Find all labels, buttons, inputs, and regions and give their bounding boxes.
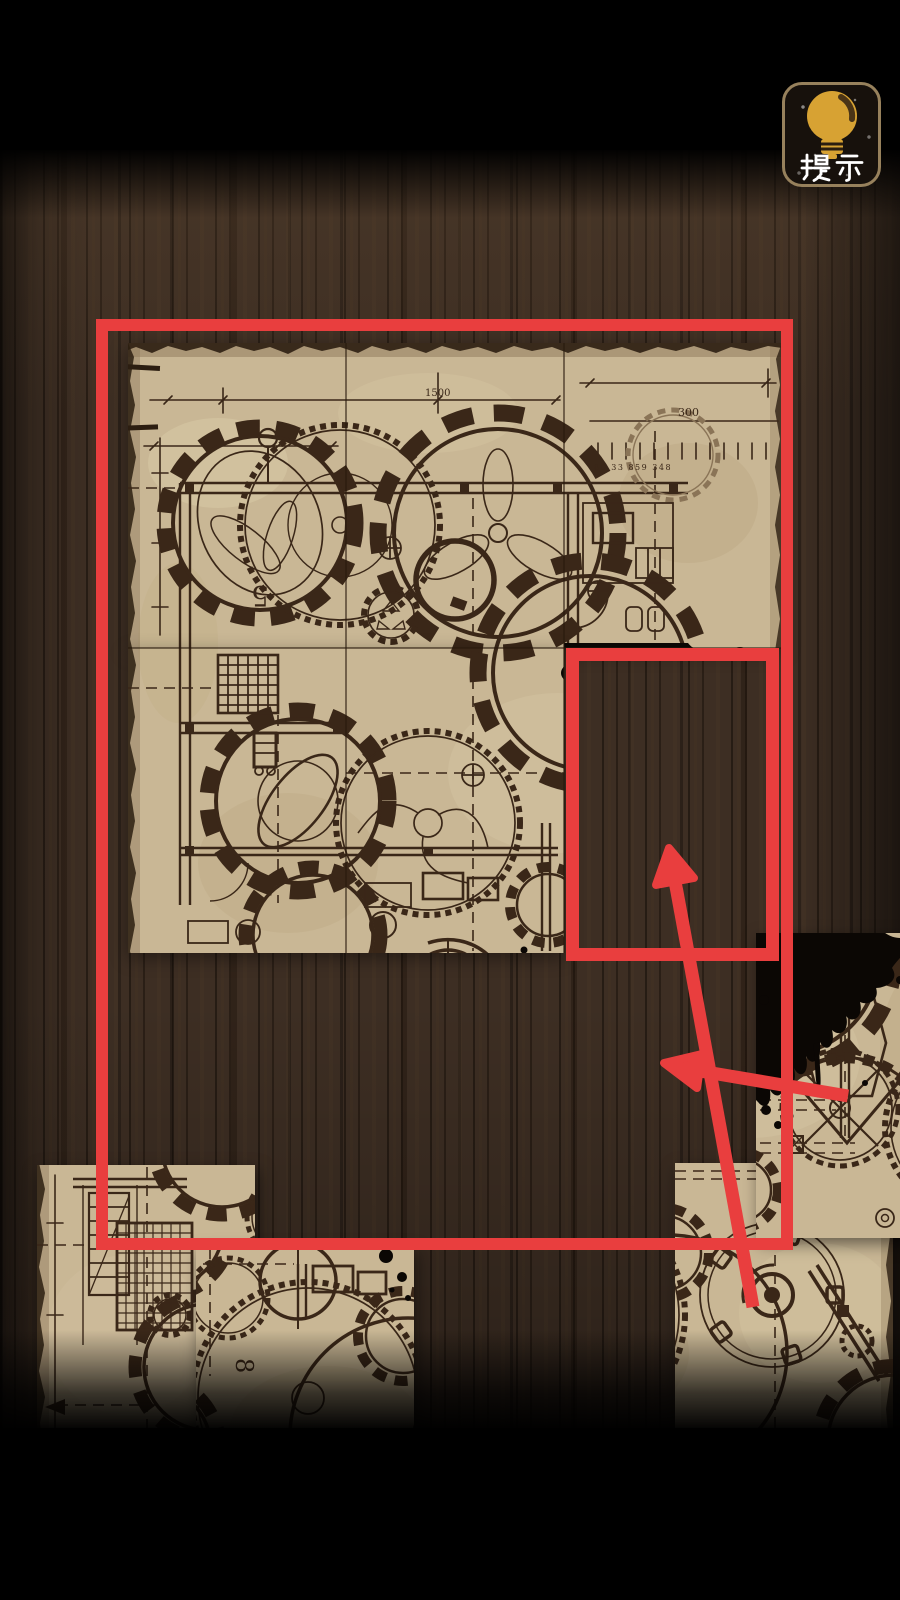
board-row-1 — [128, 343, 782, 648]
game-screen: 1500 300 80 33 859 348 340 5 8 — [0, 0, 900, 1600]
top-black-bar — [0, 0, 900, 150]
hint-button[interactable]: 提示 — [782, 82, 881, 187]
puzzle-piece-right[interactable] — [756, 933, 900, 1243]
lightbulb-icon — [785, 85, 878, 184]
tile-seam-horizontal — [128, 647, 782, 649]
bottom-black-bar — [0, 1428, 900, 1600]
puzzle-board — [128, 343, 782, 953]
